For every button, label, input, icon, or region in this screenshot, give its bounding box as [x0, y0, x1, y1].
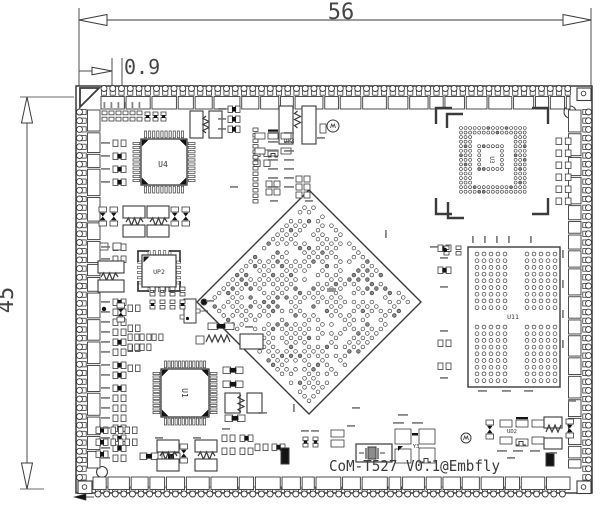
refdes-y3: Y3 — [413, 444, 420, 450]
dimension-pitch-label: 0.9 — [124, 55, 160, 79]
refdes-u3: U3 — [488, 156, 495, 164]
refdes-u11: U11 — [507, 313, 519, 321]
pcb-layout-canvas: 56 45 0.9 U4 UP2 UP3 U1 U3 U11 UD2 Y3 Co… — [0, 0, 603, 505]
refdes-u4: U4 — [158, 160, 168, 169]
refdes-up2: UP2 — [153, 268, 165, 276]
refdes-u1: U1 — [180, 388, 189, 398]
silkscreen-text: CoM-T527 V0.1@Embfly — [329, 457, 500, 475]
pcb-layout-screenshot: 56 45 0.9 U4 UP2 UP3 U1 U3 U11 UD2 Y3 Co… — [0, 0, 603, 505]
refdes-up3: UP3 — [284, 138, 295, 145]
refdes-ud2: UD2 — [507, 429, 517, 435]
dimension-height-label: 45 — [0, 287, 19, 314]
dimension-width-label: 56 — [328, 0, 355, 25]
